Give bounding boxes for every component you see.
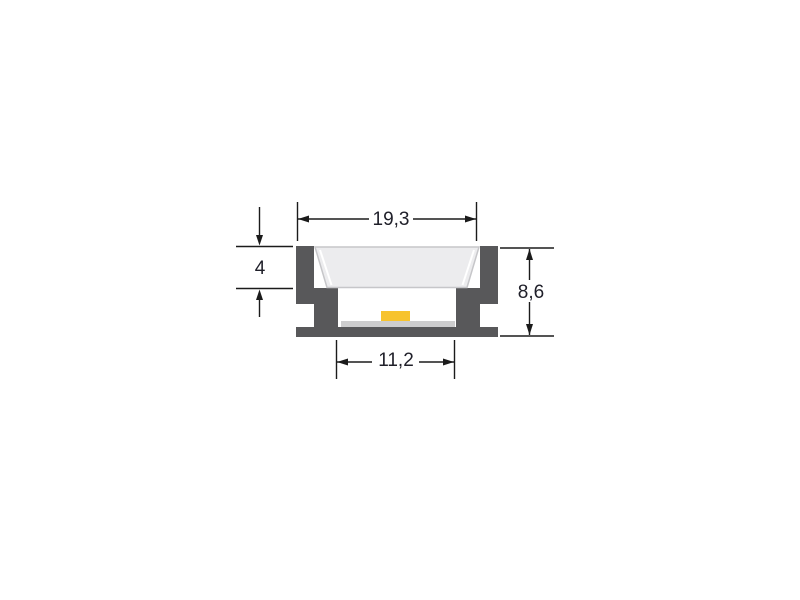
led-chip [381, 311, 410, 321]
arrowhead-right-icon [465, 216, 476, 223]
dim-overall-width: 19,3 [298, 202, 477, 241]
technical-drawing: 19,3 4 8,6 [0, 0, 800, 600]
dimension-label: 4 [255, 258, 266, 279]
dimension-label: 8,6 [518, 282, 544, 303]
dimension-label: 11,2 [378, 350, 414, 371]
arrowhead-left-icon [337, 359, 348, 366]
dim-inner-width: 11,2 [337, 340, 455, 379]
arrowhead-left-icon [298, 216, 309, 223]
drawing-canvas: 19,3 4 8,6 [0, 0, 800, 600]
arrowhead-right-icon [443, 359, 454, 366]
diffuser-cover [315, 247, 479, 288]
arrowhead-down-icon [256, 235, 263, 246]
arrowhead-up-icon [526, 249, 533, 260]
dim-recess-depth: 4 [236, 207, 293, 317]
dim-overall-height: 8,6 [500, 248, 554, 336]
pcb-strip [341, 321, 455, 327]
dimension-label: 19,3 [373, 209, 410, 230]
arrowhead-up-icon [256, 290, 263, 301]
arrowhead-down-icon [526, 324, 533, 335]
